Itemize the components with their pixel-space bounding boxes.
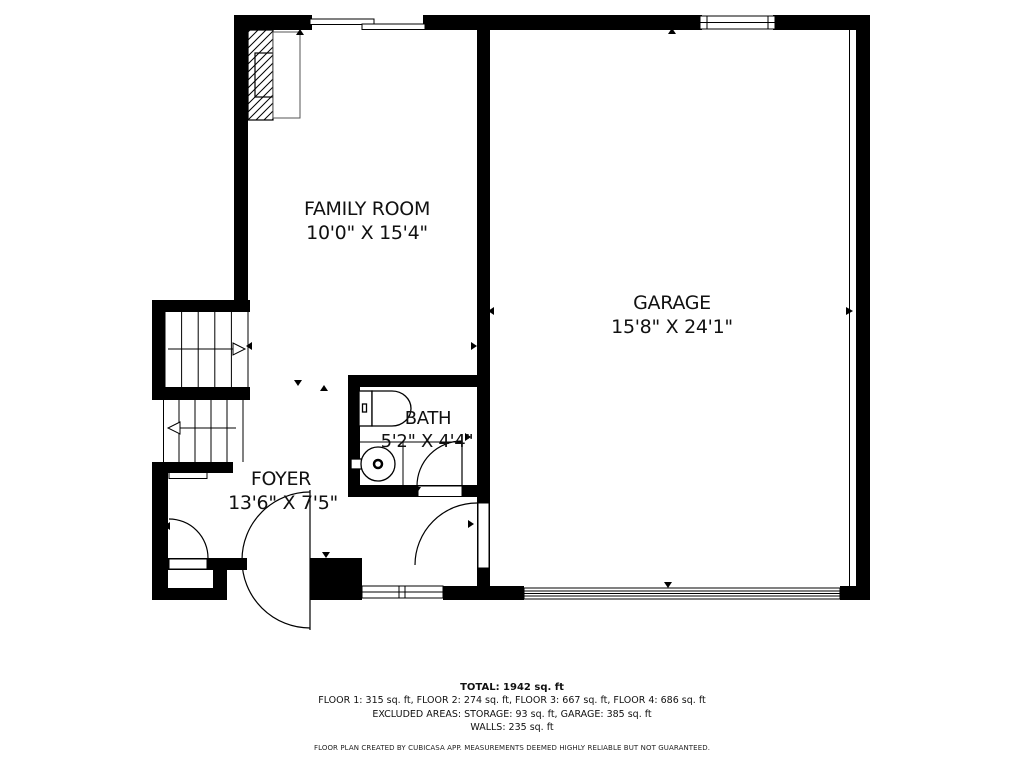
window-garage-top [700, 16, 775, 29]
closet-door [169, 519, 208, 569]
fireplace-icon [248, 30, 300, 120]
room-label-bath: BATH [405, 408, 452, 429]
room-label-garage: GARAGE [633, 292, 711, 314]
staircase-lower-flight [164, 400, 244, 462]
understair-door [169, 473, 207, 479]
room-label-foyer: FOYER [251, 468, 311, 490]
walls-area: WALLS: 235 sq. ft [0, 721, 1024, 734]
floor-areas: FLOOR 1: 315 sq. ft, FLOOR 2: 274 sq. ft… [0, 694, 1024, 707]
room-dim-garage: 15'8" X 24'1" [611, 316, 733, 338]
window-hall-bottom [362, 586, 443, 598]
room-label-family-room: FAMILY ROOM [304, 198, 430, 220]
room-dim-family-room: 10'0" X 15'4" [306, 222, 428, 244]
total-area: TOTAL: 1942 sq. ft [0, 681, 1024, 694]
toilet-icon [359, 391, 411, 426]
disclaimer: FLOOR PLAN CREATED BY CUBICASA APP. MEAS… [0, 744, 1024, 752]
excluded-areas: EXCLUDED AREAS: STORAGE: 93 sq. ft, GARA… [0, 708, 1024, 721]
garage-door [524, 588, 840, 599]
floor-plan: FAMILY ROOM 10'0" X 15'4" GARAGE 15'8" X… [0, 0, 1024, 668]
staircase-upper-flight [165, 312, 248, 387]
room-dim-foyer: 13'6" X 7'5" [228, 492, 338, 514]
area-summary: TOTAL: 1942 sq. ft FLOOR 1: 315 sq. ft, … [0, 681, 1024, 735]
garage-entry-door [415, 503, 489, 568]
sliding-door [310, 19, 425, 30]
room-dim-bath: 5'2" X 4'4" [381, 431, 474, 452]
